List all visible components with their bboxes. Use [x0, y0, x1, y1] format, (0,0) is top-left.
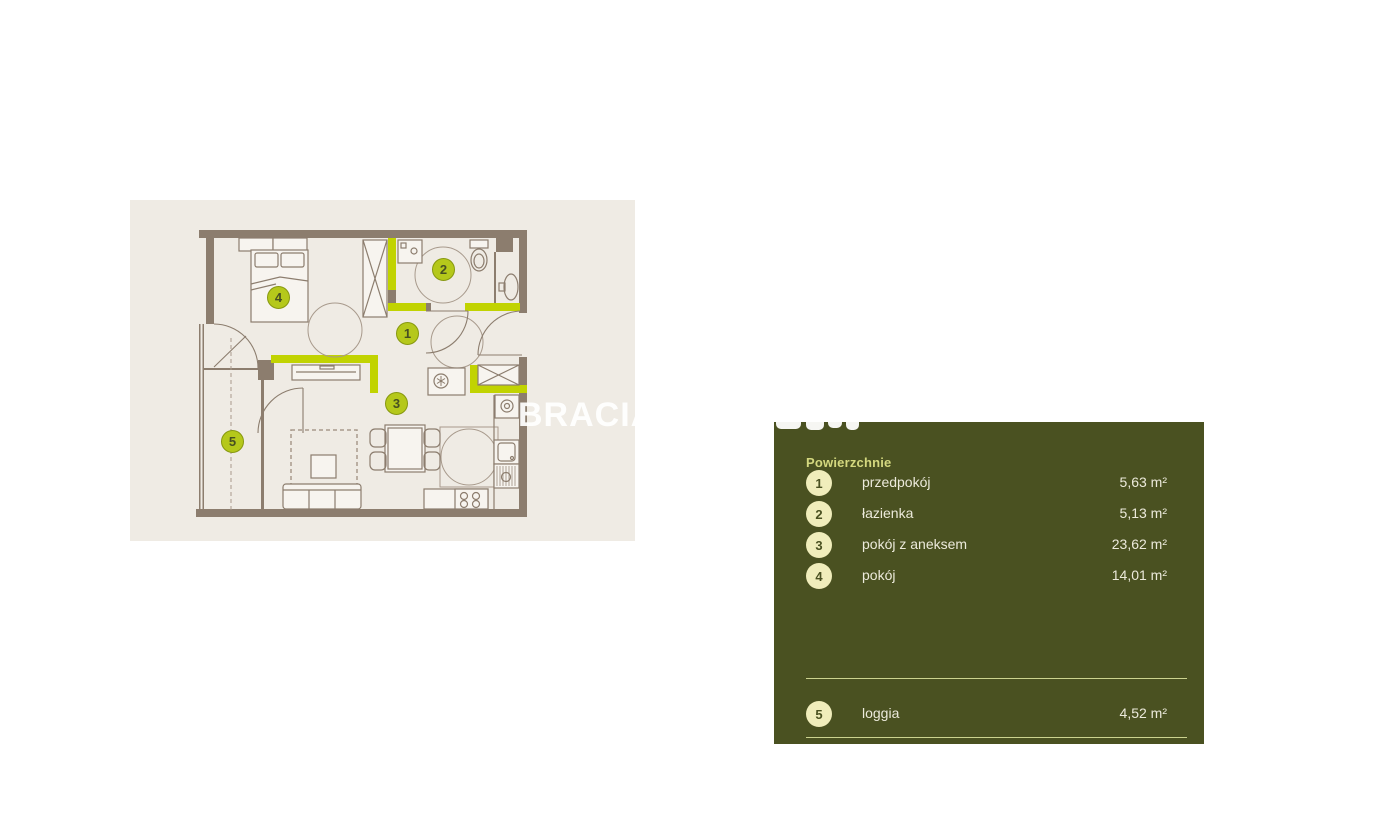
- row-label: łazienka: [862, 505, 913, 521]
- row-value: 14,01 m²: [1112, 567, 1167, 583]
- area-row-pokoj: 4 pokój 14,01 m²: [774, 561, 1204, 592]
- room-marker-4: 4: [267, 286, 290, 309]
- divider: [806, 678, 1187, 679]
- areas-panel: Powierzchnie 1 przedpokój 5,63 m² 2 łazi…: [774, 422, 1204, 744]
- row-label: pokój: [862, 567, 895, 583]
- page: 1 2 3 4 5 BRACIA Powierzchnie 1 przedpok…: [0, 0, 1379, 824]
- divider: [806, 737, 1187, 738]
- room-marker-5: 5: [221, 430, 244, 453]
- floor-plan-drawing: [130, 200, 635, 541]
- row-value: 4,52 m²: [1120, 705, 1167, 721]
- row-label: loggia: [862, 705, 899, 721]
- area-row-loggia: 5 loggia 4,52 m²: [774, 699, 1204, 730]
- room-marker-3: 3: [385, 392, 408, 415]
- area-row-lazienka: 2 łazienka 5,13 m²: [774, 499, 1204, 530]
- row-number-badge: 5: [806, 701, 832, 727]
- watermark-text: BRACIA: [518, 396, 635, 435]
- row-value: 23,62 m²: [1112, 536, 1167, 552]
- row-label: pokój z aneksem: [862, 536, 967, 552]
- row-value: 5,63 m²: [1120, 474, 1167, 490]
- area-row-przedpokoj: 1 przedpokój 5,63 m²: [774, 468, 1204, 499]
- floor-plan-image: 1 2 3 4 5 BRACIA: [130, 200, 635, 541]
- row-number-badge: 3: [806, 532, 832, 558]
- area-row-pokoj-z-aneksem: 3 pokój z aneksem 23,62 m²: [774, 530, 1204, 561]
- row-label: przedpokój: [862, 474, 931, 490]
- room-marker-2: 2: [432, 258, 455, 281]
- room-marker-1: 1: [396, 322, 419, 345]
- row-value: 5,13 m²: [1120, 505, 1167, 521]
- row-number-badge: 4: [806, 563, 832, 589]
- row-number-badge: 1: [806, 470, 832, 496]
- row-number-badge: 2: [806, 501, 832, 527]
